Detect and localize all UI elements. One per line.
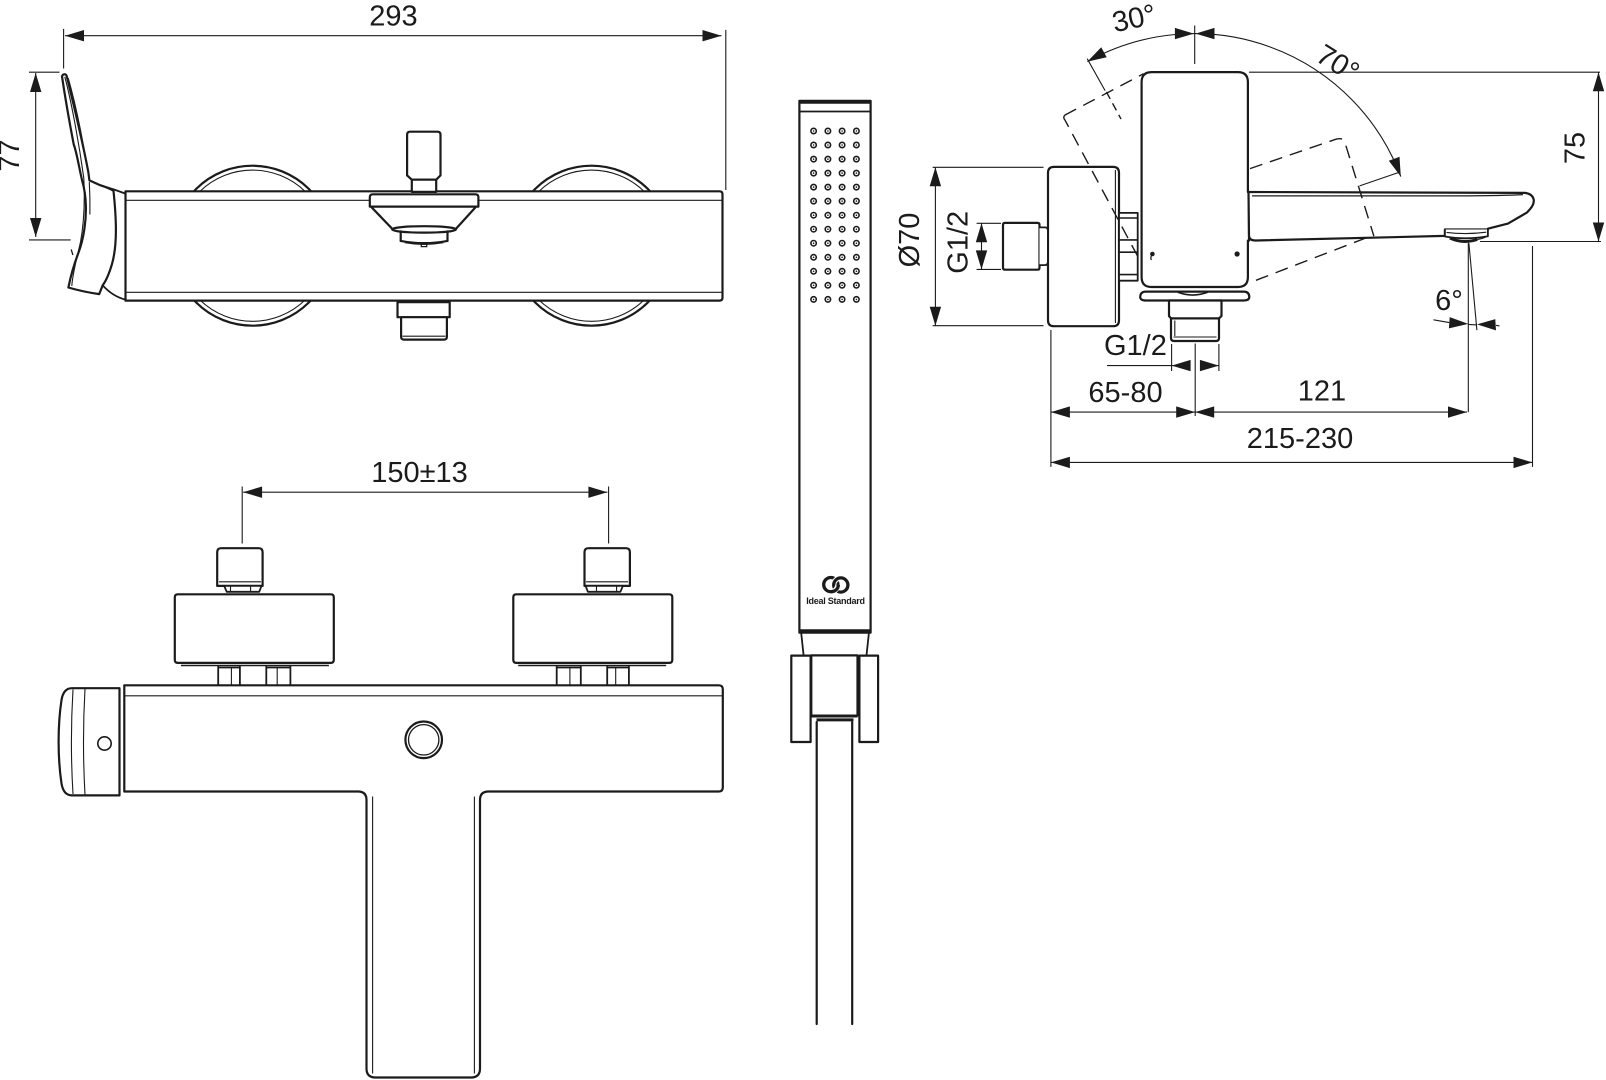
- svg-text:121: 121: [1298, 376, 1346, 408]
- svg-text:150±13: 150±13: [371, 457, 468, 489]
- svg-text:215-230: 215-230: [1247, 423, 1353, 455]
- svg-text:65-80: 65-80: [1088, 377, 1162, 409]
- svg-text:6°: 6°: [1435, 285, 1463, 317]
- svg-text:77: 77: [0, 139, 26, 171]
- svg-text:75: 75: [1560, 132, 1592, 164]
- svg-text:G1/2: G1/2: [1104, 330, 1167, 362]
- svg-text:G1/2: G1/2: [943, 211, 975, 274]
- svg-text:293: 293: [369, 1, 417, 33]
- svg-text:Ø70: Ø70: [894, 213, 926, 268]
- svg-text:Ideal Standard: Ideal Standard: [806, 596, 865, 606]
